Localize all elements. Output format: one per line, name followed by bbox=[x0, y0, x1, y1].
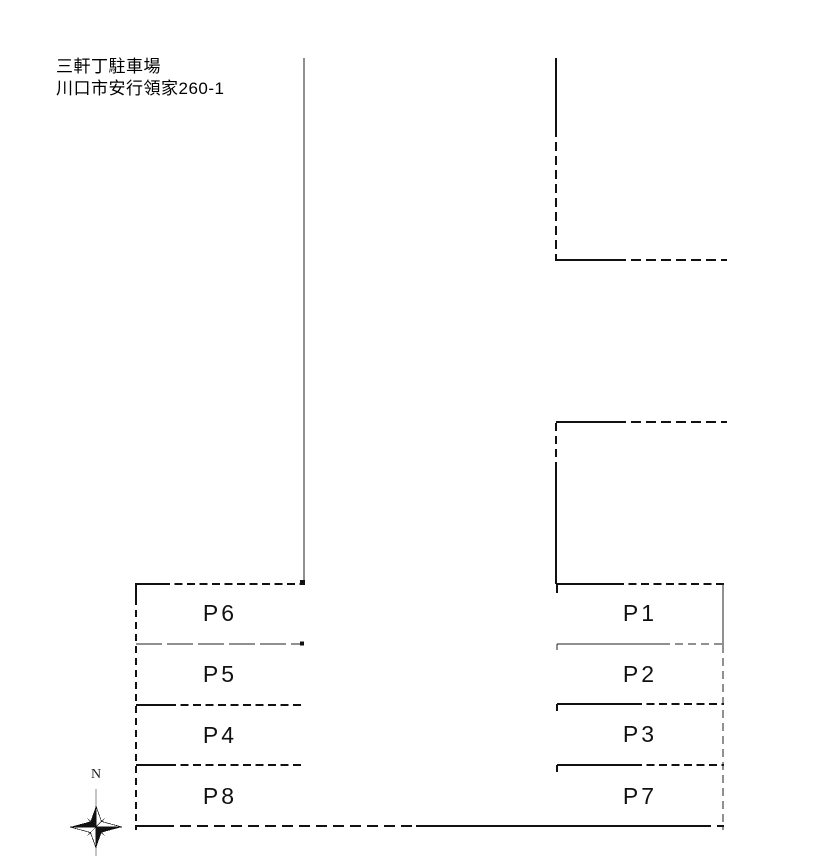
compass-rose-icon bbox=[70, 789, 122, 856]
stall-p7-label: P7 bbox=[623, 783, 657, 810]
parking-lot-map: 三軒丁駐車場 川口市安行領家260-1 bbox=[0, 0, 829, 856]
stall-p3-label: P3 bbox=[623, 721, 657, 748]
stall-p1: P1 bbox=[557, 583, 723, 644]
stall-p1-label: P1 bbox=[623, 600, 657, 627]
stall-p3: P3 bbox=[557, 704, 723, 765]
compass-center-dot bbox=[95, 826, 98, 829]
compass-north-label: N bbox=[84, 767, 108, 783]
stall-p2-label: P2 bbox=[623, 661, 657, 688]
stall-p6: P6 bbox=[135, 583, 305, 644]
stall-p7: P7 bbox=[557, 765, 723, 827]
stall-p4: P4 bbox=[135, 705, 305, 765]
stall-p8-label: P8 bbox=[203, 783, 237, 810]
stall-p4-label: P4 bbox=[203, 722, 237, 749]
stall-p8: P8 bbox=[135, 765, 305, 827]
stall-p6-label: P6 bbox=[203, 600, 237, 627]
stall-p5: P5 bbox=[135, 644, 305, 705]
stall-p2: P2 bbox=[557, 644, 723, 704]
stall-p5-label: P5 bbox=[203, 661, 237, 688]
